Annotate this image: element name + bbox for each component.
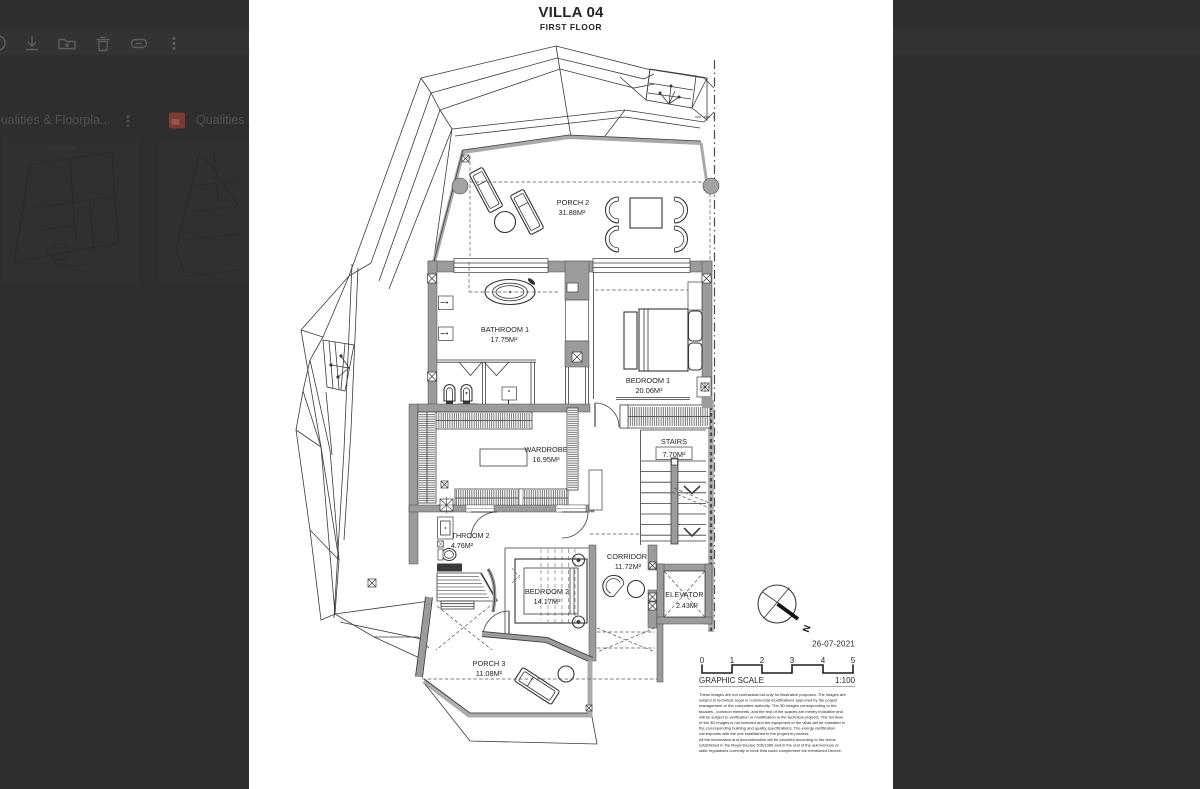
svg-text:subject to technical, legal or: subject to technical, legal or commercia… <box>699 698 838 703</box>
svg-text:BEDROOM 1: BEDROOM 1 <box>626 376 670 385</box>
svg-text:corresponds with the one est: corresponds with the one established in … <box>699 731 810 736</box>
svg-text:Qualities & Floorpla...: Qualities & Floorpla... <box>0 113 111 127</box>
svg-text:VILLA 04: VILLA 04 <box>538 4 604 21</box>
svg-text:14.17M²: 14.17M² <box>533 597 561 606</box>
svg-text:facades , common elements, and: facades , common elements, and the rest … <box>699 709 843 714</box>
svg-text:PORCH 3: PORCH 3 <box>473 659 506 668</box>
svg-text:BATHROOM 1: BATHROOM 1 <box>481 325 529 334</box>
svg-text:17.75M²: 17.75M² <box>490 335 518 344</box>
svg-text:1: 1 <box>730 656 735 665</box>
svg-text:established in the Royal Dec: established in the Royal Decree 515/1989… <box>699 742 839 747</box>
svg-text:3: 3 <box>790 656 795 665</box>
svg-text:All the information and docum: All the information and documentation wi… <box>699 737 836 742</box>
svg-text:FIRST FLOOR: FIRST FLOOR <box>540 22 602 32</box>
svg-text:GRAPHIC SCALE: GRAPHIC SCALE <box>699 676 764 685</box>
svg-text:4.76M²: 4.76M² <box>451 541 474 550</box>
svg-text:These images are not contrac: These images are not contractual but onl… <box>699 692 846 697</box>
svg-text:11.72M²: 11.72M² <box>615 562 642 571</box>
svg-text:2: 2 <box>760 656 765 665</box>
svg-text:the corresponding building: the corresponding building and quality s… <box>699 726 835 731</box>
svg-text:4: 4 <box>821 656 826 665</box>
svg-text:STAIRS: STAIRS <box>661 437 687 446</box>
svg-text:11.08M²: 11.08M² <box>476 669 503 678</box>
svg-text:31.88M²: 31.88M² <box>559 208 586 217</box>
svg-text:20.06M²: 20.06M² <box>635 386 663 395</box>
svg-text:will be subject to verificatio: will be subject to verification or modif… <box>699 714 844 719</box>
svg-text:26-07-2021: 26-07-2021 <box>812 640 855 649</box>
svg-text:of the 3D images is not inclu: of the 3D images is not included and the… <box>699 720 845 725</box>
svg-text:WARDROBE: WARDROBE <box>524 445 567 454</box>
svg-text:CORRIDOR: CORRIDOR <box>607 552 647 561</box>
svg-text:ELEVATOR: ELEVATOR <box>665 592 704 599</box>
svg-text:5: 5 <box>851 656 856 665</box>
svg-text:BEDROOM 2: BEDROOM 2 <box>525 587 569 596</box>
svg-text:1:100: 1:100 <box>835 676 856 685</box>
svg-text:2.43M²: 2.43M² <box>676 603 698 610</box>
svg-text:16.95M²: 16.95M² <box>532 455 560 464</box>
svg-text:management or the competent: management or the competent authority. T… <box>699 703 837 708</box>
svg-text:Qualities &: Qualities & <box>196 113 257 127</box>
svg-text:0: 0 <box>700 656 705 665</box>
svg-text:state regulations currently i: state regulations currently in force tha… <box>699 748 842 753</box>
svg-text:PORCH 2: PORCH 2 <box>557 198 589 207</box>
